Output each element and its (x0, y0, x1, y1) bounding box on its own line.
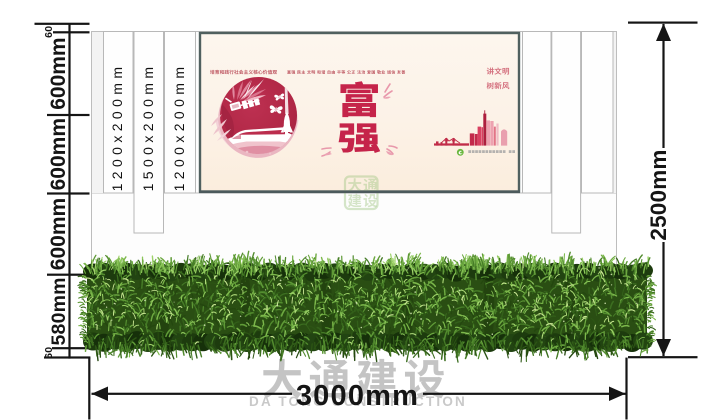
svg-text:600mm: 600mm (47, 198, 70, 270)
svg-text:600mm: 600mm (47, 37, 70, 109)
svg-text:1500x200mm: 1500x200mm (140, 63, 156, 192)
svg-text:600mm: 600mm (47, 118, 70, 190)
svg-text:2500mm: 2500mm (646, 149, 671, 240)
svg-text:60: 60 (43, 347, 55, 359)
svg-text:60: 60 (43, 26, 55, 38)
svg-text:1200x200mm: 1200x200mm (171, 63, 187, 192)
svg-text:1200x200mm: 1200x200mm (109, 63, 125, 192)
svg-text:580mm: 580mm (48, 277, 70, 345)
svg-text:3000mm: 3000mm (296, 380, 419, 412)
